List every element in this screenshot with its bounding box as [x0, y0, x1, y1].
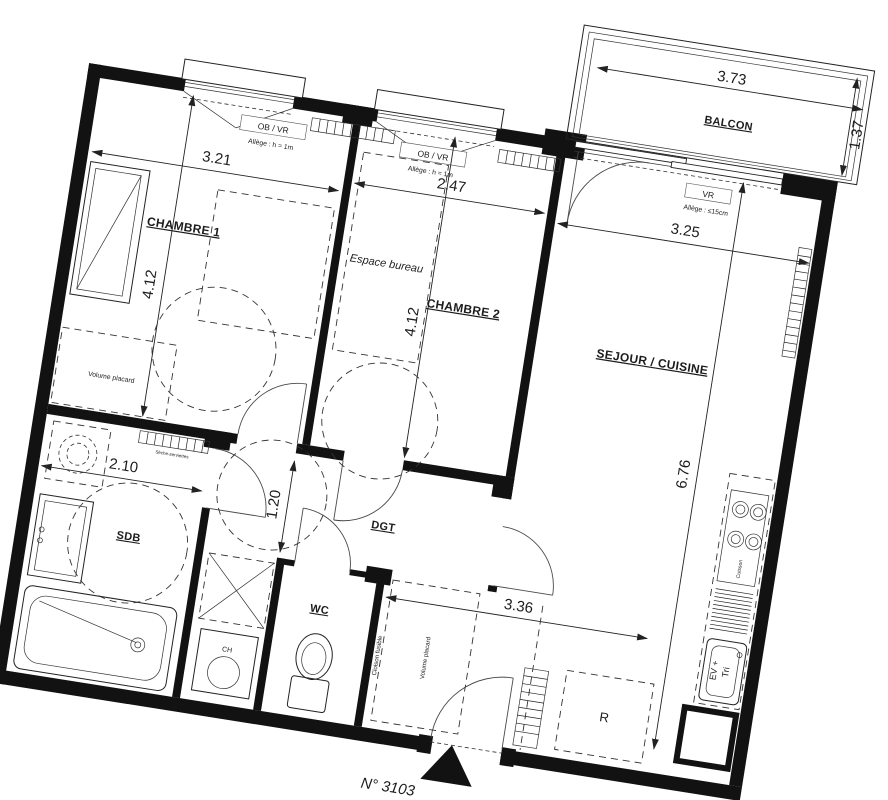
- window-chambre1-allege: Allège : h = 1m: [248, 138, 294, 152]
- technical-shaft: [676, 707, 736, 768]
- towel-radiator-label: Sèche-serviettes: [155, 449, 190, 459]
- sink-cabinet-sdb: [27, 494, 93, 583]
- water-heater-label: CH: [221, 646, 232, 654]
- sink-label-line2: Tri: [720, 666, 731, 678]
- door-entree: [430, 667, 513, 753]
- sdb-label: SDB: [116, 529, 142, 545]
- balcony: BALCON 3.73 1.37: [566, 25, 875, 185]
- toilet: [287, 631, 337, 713]
- water-heater: CH: [191, 629, 258, 699]
- window-sejour-allege: Allège : ≤15cm: [683, 204, 729, 218]
- chambre2-depth-dim: 4.12: [402, 306, 423, 338]
- chambre2-label: CHAMBRE 2: [426, 296, 501, 321]
- balcony-label: BALCON: [703, 114, 753, 133]
- sejour-width-dim: 3.25: [670, 220, 702, 241]
- sejour-depth-dim: 6.76: [673, 458, 694, 490]
- chambre1-width-dim: 3.21: [201, 148, 233, 169]
- floor-plan-drawing: BALCON 3.73 1.37 OB / VR Allège : h = 1m: [0, 0, 888, 800]
- interior-walls: [6, 78, 566, 744]
- sdb-width-dim: 2.10: [108, 455, 140, 476]
- placard-entree-label: Volume placard: [419, 636, 433, 680]
- chambre1-depth-dim: 4.12: [139, 269, 160, 301]
- unit-number: N° 3103: [360, 775, 417, 800]
- floor-plan-sheet: BALCON 3.73 1.37 OB / VR Allège : h = 1m: [0, 0, 888, 800]
- fridge-label: R: [598, 709, 610, 725]
- placard-chambre1: Volume placard: [51, 327, 177, 420]
- dgt-label: DGT: [370, 519, 396, 535]
- fridge-zone: R: [555, 670, 654, 763]
- structural-columns: [162, 83, 613, 767]
- balcony-door: [567, 152, 649, 234]
- window-sejour-bay: VR Allège : ≤15cm: [548, 141, 823, 358]
- chambre1-label: CHAMBRE 1: [146, 214, 221, 239]
- door-wc: [294, 508, 358, 572]
- door-chambre1: [238, 375, 307, 444]
- sejour-label: SEJOUR / CUISINE: [596, 346, 710, 377]
- chambre2-width-dim: 2.47: [436, 175, 468, 196]
- entree-width-dim: 3.36: [503, 596, 535, 617]
- balcony-width-dim: 3.73: [716, 68, 748, 89]
- wc-label: WC: [309, 602, 330, 617]
- door-sejour: [493, 527, 562, 596]
- window-sejour-type: VR: [702, 189, 715, 201]
- balcony-depth-dim: 1.37: [846, 119, 867, 151]
- bed-zone-chambre1: [197, 190, 334, 339]
- placard-chambre1-label: Volume placard: [88, 371, 136, 385]
- drainboard: [709, 589, 753, 634]
- door-chambre2: [334, 461, 403, 530]
- kitchen-sink: EV + Tri: [698, 638, 747, 705]
- sink-label-line1: EV +: [707, 660, 720, 681]
- washbasin-sdb: [45, 421, 111, 487]
- washing-machine-zone: [199, 553, 275, 629]
- espace-bureau-label: Espace bureau: [349, 252, 424, 275]
- cooktop-label: Cuisson: [736, 559, 745, 579]
